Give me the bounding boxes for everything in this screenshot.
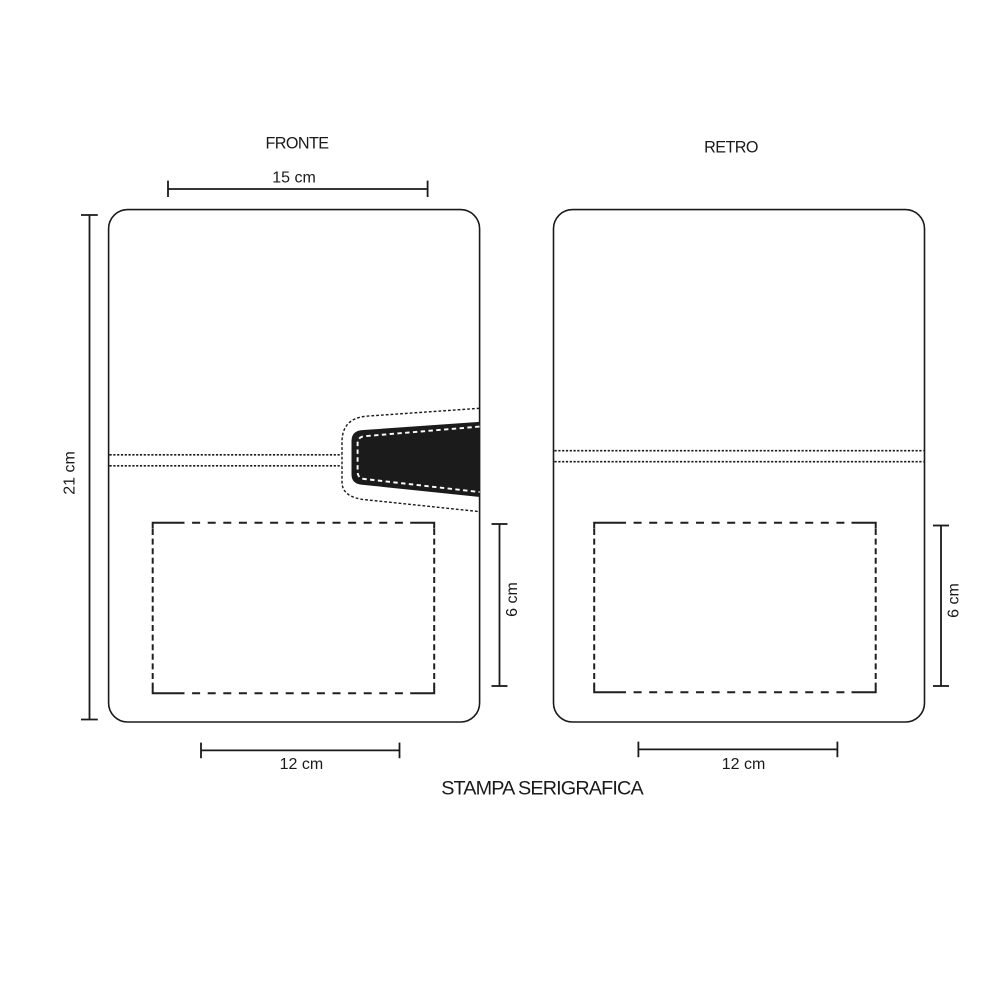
svg-text:RETRO: RETRO (704, 139, 758, 157)
svg-text:15 cm: 15 cm (272, 170, 316, 187)
svg-text:6 cm: 6 cm (946, 583, 963, 618)
svg-text:FRONTE: FRONTE (266, 135, 330, 153)
svg-text:6 cm: 6 cm (504, 582, 521, 617)
svg-text:STAMPA SERIGRAFICA: STAMPA SERIGRAFICA (441, 777, 644, 799)
svg-text:12 cm: 12 cm (722, 756, 766, 773)
svg-text:12 cm: 12 cm (280, 756, 324, 773)
svg-text:21 cm: 21 cm (62, 451, 79, 495)
